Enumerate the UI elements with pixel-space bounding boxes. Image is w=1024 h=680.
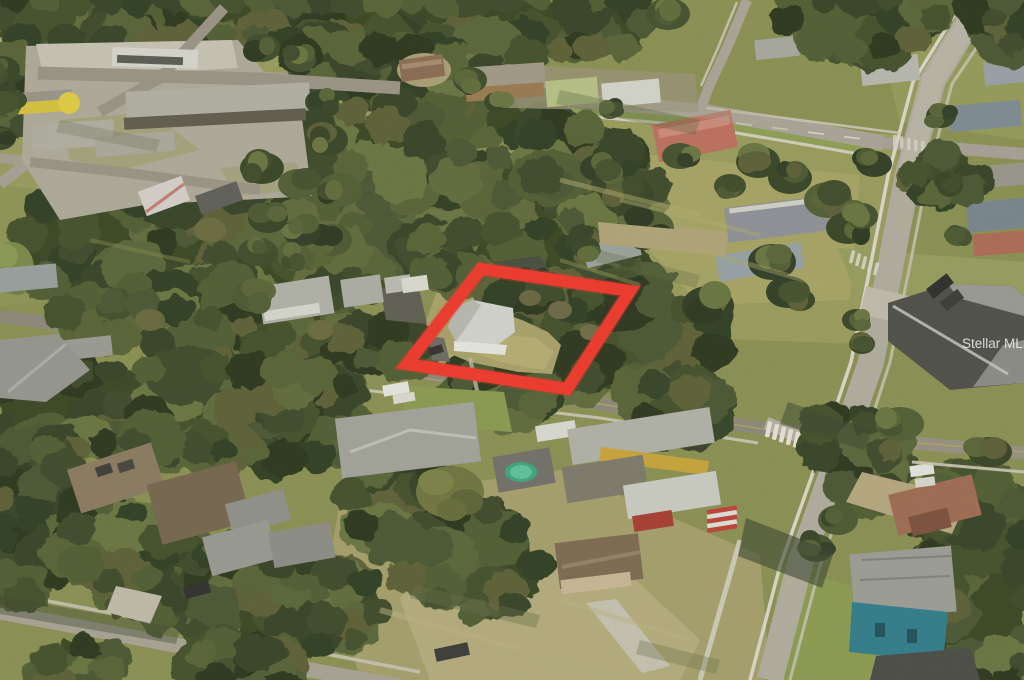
svg-text:Stellar MLS: Stellar MLS	[962, 336, 1024, 351]
